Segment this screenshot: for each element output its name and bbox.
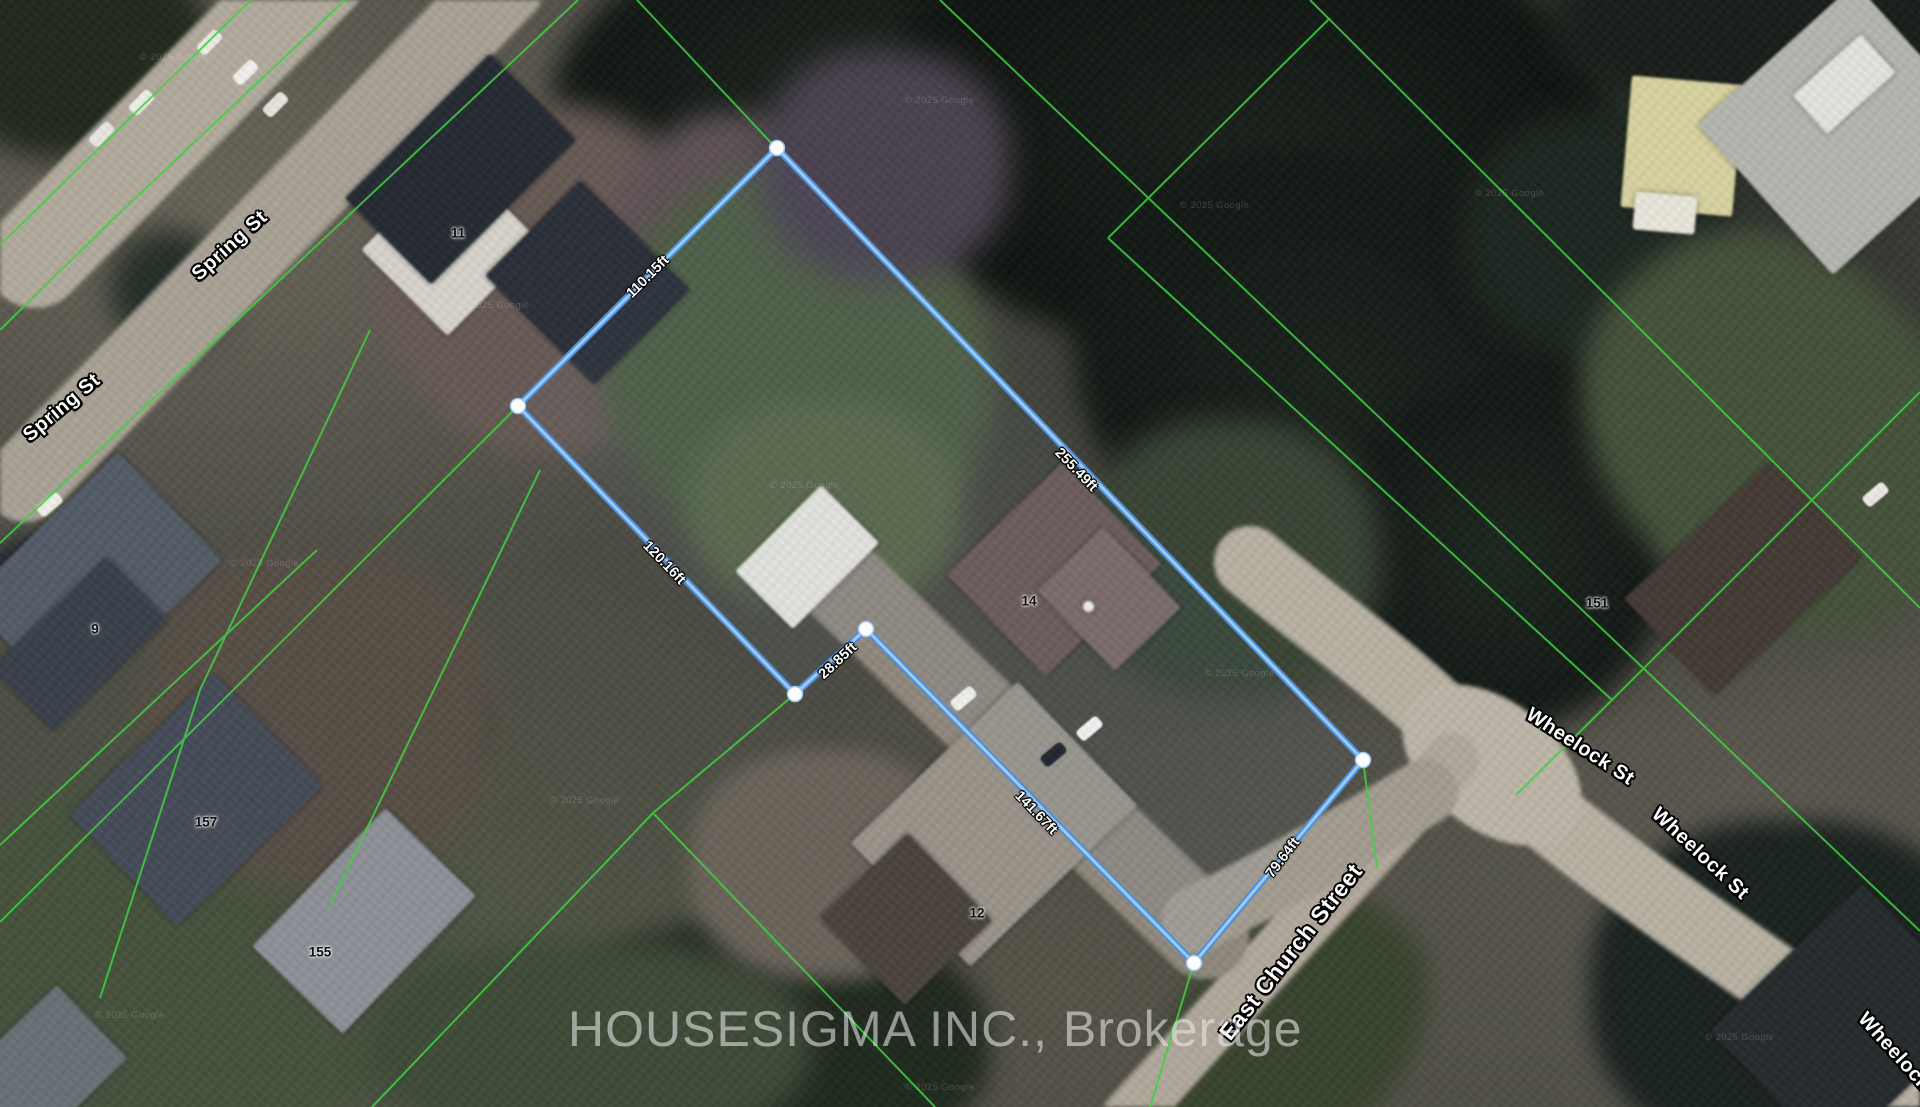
- map-copyright: © 2025 Google: [1475, 188, 1544, 199]
- map-copyright: © 2025 Google: [140, 52, 209, 63]
- map-copyright: © 2025 Google: [1180, 200, 1249, 211]
- map-copyright: © 2025 Google: [905, 1082, 974, 1093]
- map-copyright: © 2025 Google: [550, 795, 619, 806]
- watermark-layer: HOUSESIGMA INC., Brokerage © 2025 Google…: [0, 0, 1920, 1107]
- map-copyright: © 2025 Google: [1205, 668, 1274, 679]
- brokerage-watermark: HOUSESIGMA INC., Brokerage: [568, 1000, 1303, 1058]
- satellite-map-viewport[interactable]: 110.15ft 120.16ft 28.85ft 141.67ft 79.64…: [0, 0, 1920, 1107]
- map-copyright: © 2025 Google: [1705, 1032, 1774, 1043]
- map-copyright: © 2025 Google: [770, 480, 839, 491]
- map-copyright: © 2025 Google: [460, 300, 529, 311]
- map-copyright: © 2025 Google: [905, 95, 974, 106]
- map-copyright: © 2025 Google: [230, 558, 299, 569]
- map-copyright: © 2025 Google: [95, 1010, 164, 1021]
